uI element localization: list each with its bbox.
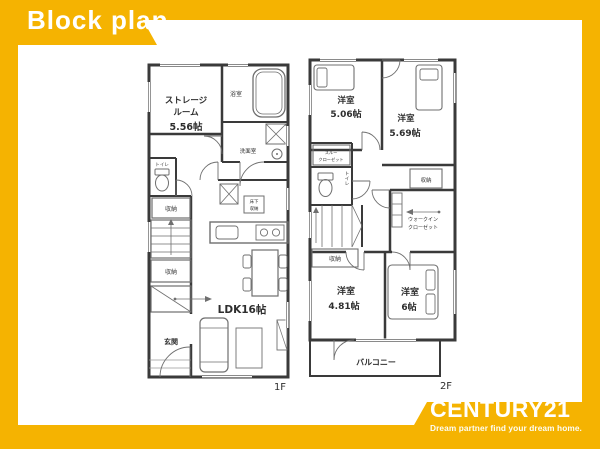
entry-arrow-1f: [174, 296, 212, 302]
storage-room-label: ストレージ: [165, 96, 208, 106]
wic-shelf: [392, 193, 402, 227]
closet-b-label: 収納: [165, 268, 177, 276]
toilet-label-1f: トイレ: [155, 163, 169, 168]
bedroom2-size: 5.69帖: [389, 127, 420, 139]
toilet-label-2f: トイレ: [344, 171, 349, 186]
hall-closet-label1: スルー: [325, 150, 338, 155]
wic-label1: ウォークイン: [408, 216, 438, 223]
underfloor-storage-label2: 収納: [250, 205, 259, 212]
ldk-label: LDK16帖: [218, 303, 267, 316]
bedroom3-size: 4.81帖: [328, 300, 359, 312]
rug: [236, 328, 262, 368]
washing-machine-icon: [266, 124, 286, 144]
bathtub-icon: [253, 69, 285, 117]
stairs-2f: [313, 205, 362, 247]
toilet-icon-2f: [318, 173, 333, 197]
windows-1f: [148, 64, 290, 379]
brand-tagline: Dream partner find your dream home.: [430, 423, 590, 433]
dining-table: [243, 250, 287, 296]
hall-closet-label2: クローゼット: [318, 156, 343, 163]
entrance-step-lines: [149, 360, 191, 368]
century21-logo: CENTURY21 Dream partner find your dream …: [430, 397, 590, 433]
storage-room-size: 5.56帖: [170, 121, 203, 133]
floorplan-1f: ストレージ ルーム 5.56帖 浴室 洗面室 トイレ: [146, 62, 292, 394]
kitchen-counter: [210, 222, 288, 243]
brand-name: CENTURY21: [430, 397, 590, 421]
bedroom1-label: 洋室: [337, 95, 355, 106]
balcony-label: バルコニー: [356, 358, 396, 367]
bedroom4-size: 6帖: [401, 301, 416, 313]
entrance-door-arc: [160, 347, 190, 377]
wic-label2: クローゼット: [408, 224, 438, 231]
sofa: [200, 318, 228, 372]
bed-icon-5-06: [314, 65, 354, 90]
floor-label-2f: 2F: [440, 381, 452, 392]
washroom-label: 洗面室: [240, 147, 257, 155]
bedroom2-closet-label: 収納: [420, 176, 432, 184]
hall-closet-box: [313, 145, 350, 165]
floor-label-1f: 1F: [274, 382, 286, 393]
wic-arrow: [406, 209, 440, 215]
bedroom4-label: 洋室: [401, 286, 419, 298]
stair-closet-label: 収納: [329, 255, 341, 263]
bath-label: 浴室: [230, 90, 242, 98]
basin-icon: [272, 149, 282, 159]
floorplan-2f: 洋室 5.06帖 洋室 5.69帖 スルー クローゼット トイレ: [306, 55, 458, 395]
content-panel: ストレージ ルーム 5.56帖 浴室 洗面室 トイレ: [18, 20, 582, 425]
closet-a-label: 収納: [165, 205, 177, 213]
stairs-1f: [151, 219, 191, 258]
bedroom1-size: 5.06帖: [330, 108, 361, 120]
walls-1f: [149, 65, 288, 377]
toilet-icon-1f: [155, 169, 169, 191]
bed-icon-5-69: [416, 65, 442, 110]
underfloor-storage-label1: 床下: [250, 198, 259, 205]
flyer-page: Block plan ストレージ ルーム 5.56帖 浴室: [0, 0, 600, 449]
bedroom2-label: 洋室: [397, 113, 415, 124]
storage-room-label2: ルーム: [173, 108, 199, 118]
entrance-label: 玄関: [164, 337, 178, 346]
bedroom3-label: 洋室: [337, 285, 355, 297]
refrigerator-space-icon: [220, 184, 238, 204]
